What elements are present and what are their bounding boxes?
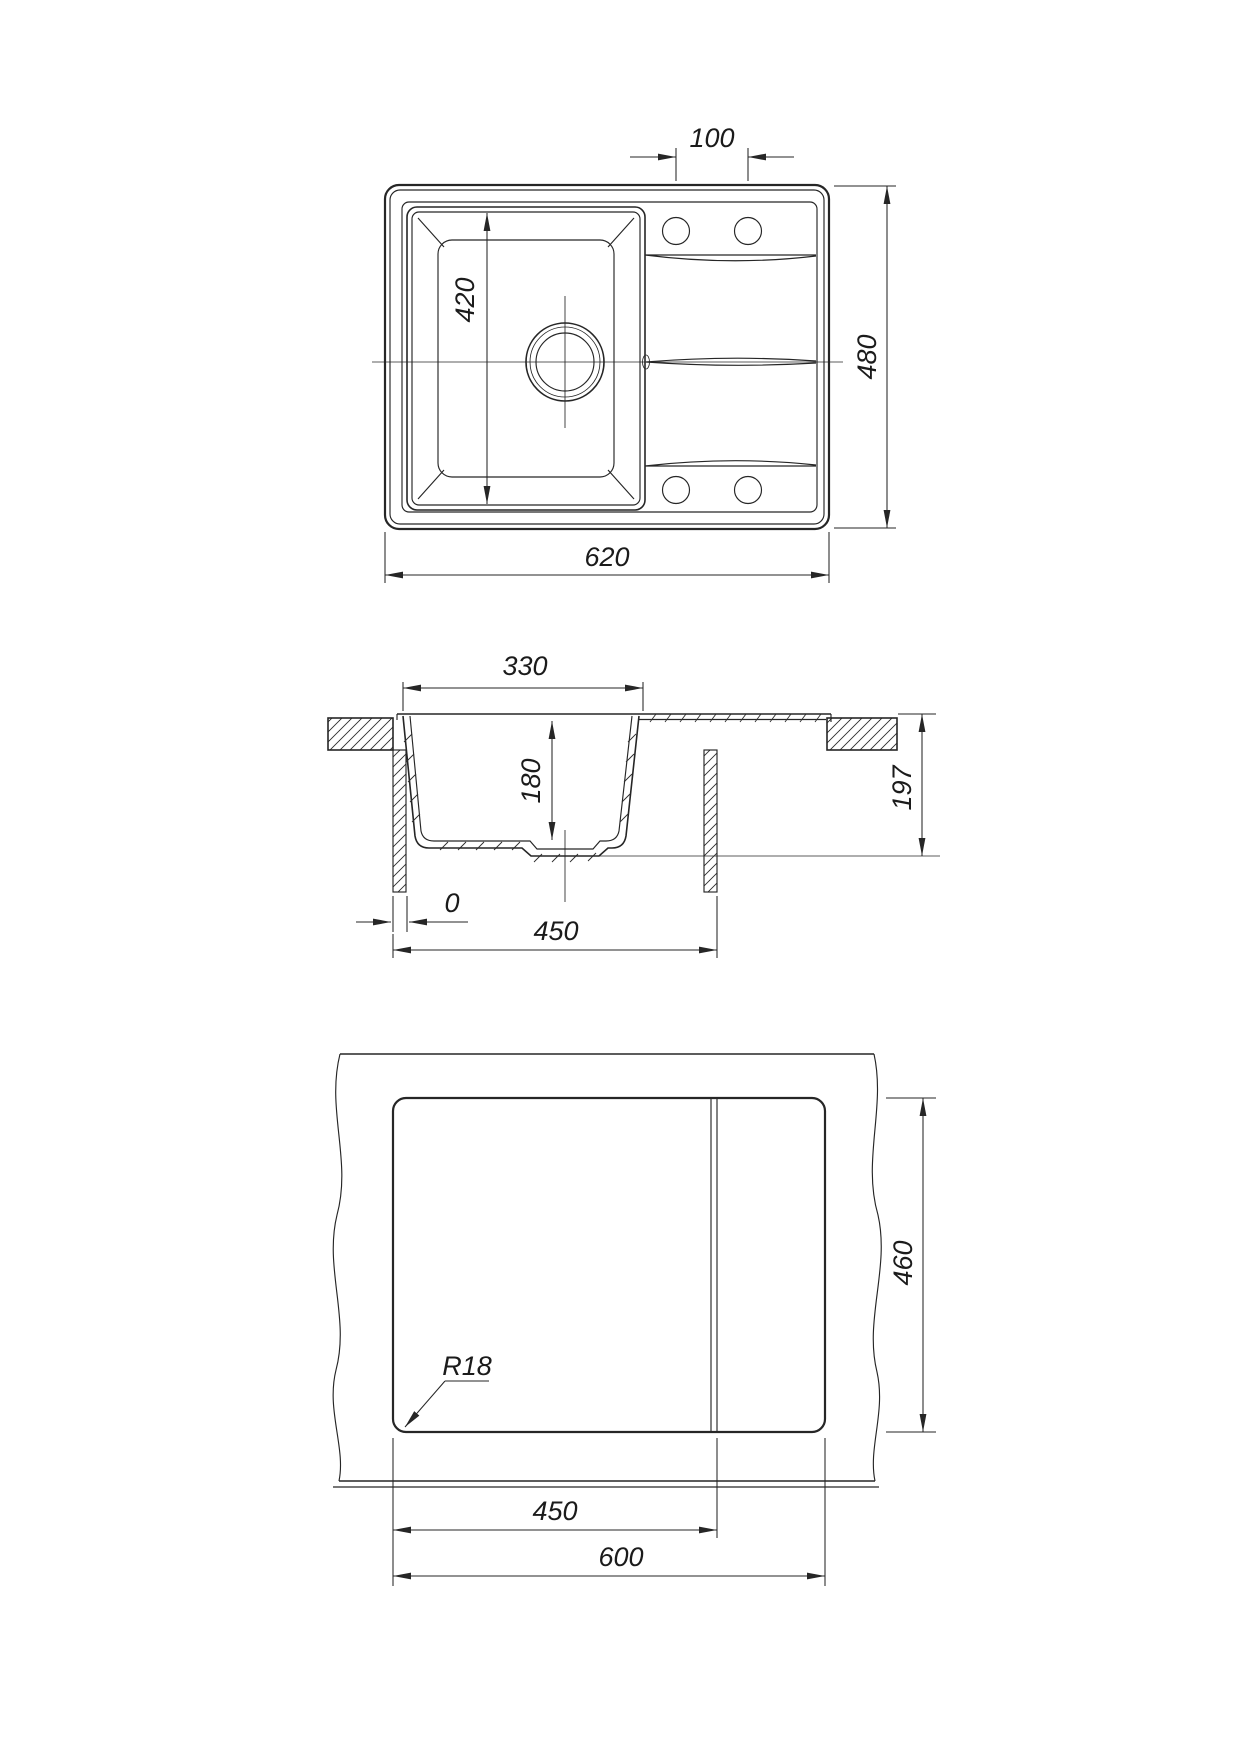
drainboard-section-hatch [650,714,821,722]
counter-left-break-edge [333,1054,342,1481]
dim-text-460: 460 [888,1240,918,1285]
dim-text-480: 480 [852,334,882,379]
dim-text-197: 197 [887,764,917,810]
dim-text-180: 180 [516,758,546,803]
countertop-left-hatch [328,718,393,750]
dim-bowl-depth: 180 [516,721,552,840]
dim-text-600: 600 [598,1542,643,1572]
dim-text-620: 620 [584,542,629,572]
dim-text-330: 330 [502,651,547,681]
dim-text-100: 100 [689,123,734,153]
countertop-right-hatch [827,718,897,750]
drainboard-groove-bottom [645,461,816,466]
drainboard-groove-top [645,255,816,261]
dim-hole-spacing: 100 [630,123,794,181]
dim-base-width: 450 [393,896,717,958]
dim-overall-height: 480 [834,186,896,528]
dim-cut-depth: 460 [886,1098,936,1432]
dim-text-450-section: 450 [533,916,578,946]
dim-cut-left-width: 450 [393,1438,717,1586]
dim-edge-offset: 0 [356,888,468,932]
dim-text-0: 0 [444,888,459,918]
dim-text-r18: R18 [442,1351,492,1381]
dim-bowl-length: 420 [450,213,487,504]
dim-text-420: 420 [450,277,480,322]
counter-right-break-edge [872,1054,881,1481]
plan-view: 420 100 480 620 [372,123,896,583]
sink-drawing-svg: 420 100 480 620 [0,0,1241,1754]
cabinet-left-panel-hatch [393,750,406,892]
cutout-view: R18 460 450 600 [333,1054,936,1586]
dim-bowl-top-width: 330 [403,651,643,711]
faucet-hole-bottom-left [663,477,690,504]
cabinet-right-panel-hatch [704,750,717,892]
faucet-hole-bottom-right [735,477,762,504]
faucet-hole-top-left [663,218,690,245]
sink-rim-profile-edges [397,714,831,722]
faucet-hole-top-right [735,218,762,245]
technical-drawing-page: 420 100 480 620 [0,0,1241,1754]
section-view: 330 180 197 0 450 [328,651,940,958]
dim-overall-width: 620 [385,532,829,583]
cutout-rect [393,1098,825,1432]
callout-corner-radius: R18 [405,1351,492,1427]
dim-text-450-cutout: 450 [532,1496,577,1526]
dim-cut-full-width: 600 [393,1438,825,1586]
